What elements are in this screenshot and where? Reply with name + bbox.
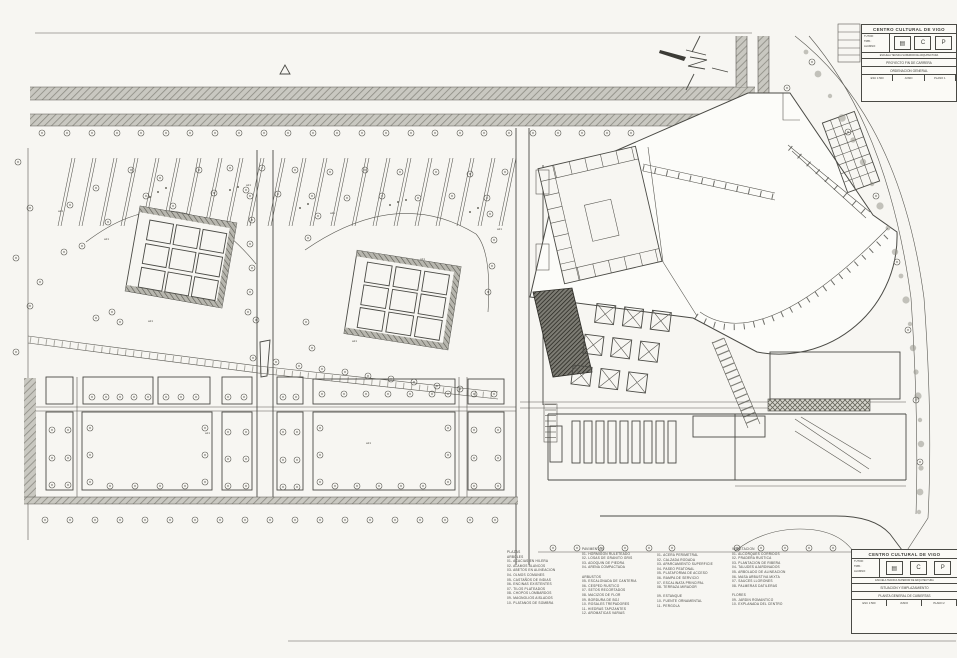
tree-row-south <box>42 517 498 523</box>
title-block-top-side-labels: TUTOR: TRIB.: ALUMNO: <box>862 34 890 52</box>
sheet-number-cell: PLANO 1 <box>925 75 956 81</box>
tree-tag: a21 <box>58 209 63 213</box>
title-block-bottom-side-labels: TUTOR: TRIB.: ALUMNO: <box>852 559 880 577</box>
legend-column-3: 01- ACERA PERIMETRAL 02- CALZADA RODADA … <box>657 553 731 608</box>
legend-column-4: VEGETACION 01- ALCORQUES CORRIDOS 02- PR… <box>732 547 806 607</box>
stamp-icon: ▤ <box>894 36 911 50</box>
tree-tag: a21 <box>420 257 425 261</box>
date-cell: JUNIO <box>887 600 922 606</box>
top-road-bands <box>30 36 790 126</box>
triangle-marker-icon <box>280 65 290 74</box>
tree-tag: a21 <box>330 211 335 215</box>
mini-title-table <box>838 24 860 62</box>
cultural-center <box>530 93 900 428</box>
stamp-icon: C <box>914 36 931 50</box>
title-block-bottom: CENTRO CULTURAL DE VIGO TUTOR: TRIB.: AL… <box>851 549 957 634</box>
esplanade-south <box>520 399 906 486</box>
title-block-top-row-2: ORDENACION GENERAL <box>862 67 956 75</box>
drawing-sheet: a21 a21 a21 a21 a21 a21 a21 a21 a21 a21 … <box>0 0 957 658</box>
north-arrow-icon <box>659 36 728 90</box>
plaza-1 <box>37 193 259 325</box>
stamp-icon: P <box>934 561 951 575</box>
tree-tag: a21 <box>366 441 371 445</box>
grand-stairs <box>712 338 760 428</box>
title-block-top: CENTRO CULTURAL DE VIGO TUTOR: TRIB.: AL… <box>861 24 957 102</box>
sheet-number-cell: PLANO 2 <box>922 600 957 606</box>
stamp-icon: ▤ <box>886 561 903 575</box>
plaza-2 <box>303 211 497 351</box>
legend-column-2: PAVIMENTOS 01- HORMIGON RULETEADO 02- LO… <box>582 547 656 616</box>
tree-tag: a21 <box>148 319 153 323</box>
title-block-bottom-footer: ESC 1:500 JUNIO PLANO 2 <box>852 600 957 606</box>
tree-tag: a21 <box>352 339 357 343</box>
street-vertical-2 <box>516 128 543 565</box>
title-block-top-title: CENTRO CULTURAL DE VIGO <box>862 25 956 34</box>
crosshatch-deck <box>768 399 870 411</box>
title-block-bottom-title: CENTRO CULTURAL DE VIGO <box>852 550 957 559</box>
stamp-icon: C <box>910 561 927 575</box>
scale-cell: ESC 1:500 <box>852 600 887 606</box>
street-vertical-1 <box>257 150 273 500</box>
scale-cell: ESC 1:500 <box>862 75 893 81</box>
title-block-top-row-1: PROYECTO FIN DE CARRERA <box>862 59 956 67</box>
title-block-bottom-row-2: PLANTA GENERAL DE CUBIERTAS <box>852 592 957 600</box>
planting-strips <box>58 158 516 226</box>
tree-tag: a21 <box>205 431 210 435</box>
title-block-bottom-stamps: ▤ C P <box>880 559 957 577</box>
tree-tag: a21 <box>246 183 251 187</box>
tree-row-avenue <box>39 130 634 136</box>
legend-column-1: PLAZAS ARBOLES 01- ACACIAS EN HILERA 02-… <box>507 550 581 605</box>
tree-tag: a21 <box>104 237 109 241</box>
tree-tag: a21 <box>497 227 502 231</box>
stamp-icon: P <box>935 36 952 50</box>
site-plan-svg: a21 a21 a21 a21 a21 a21 a21 a21 a21 a21 <box>0 0 957 658</box>
title-block-bottom-row-1: SITUACION Y EMPLAZAMIENTO <box>852 584 957 592</box>
title-block-top-stamps: ▤ C P <box>890 34 956 52</box>
date-cell: JUNIO <box>893 75 924 81</box>
south-blocks <box>24 377 518 504</box>
title-block-top-footer: ESC 1:500 JUNIO PLANO 1 <box>862 75 956 81</box>
